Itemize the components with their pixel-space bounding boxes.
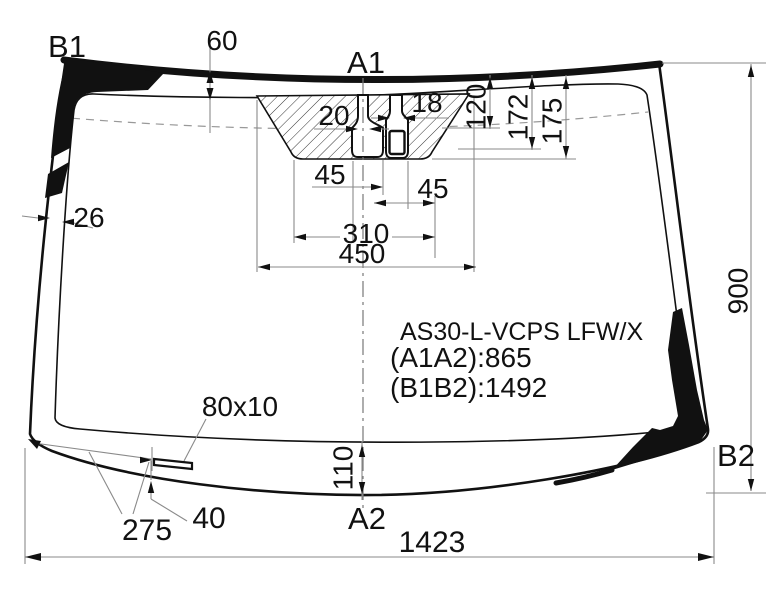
diagram-canvas: B1 A1 A2 B2 60 20 18 120 172 175 45 45 2…: [0, 0, 775, 600]
dim-depth-120: 120: [460, 84, 491, 131]
diagonal-a1a2: (A1A2):865: [390, 342, 532, 373]
dim-110: 110: [327, 446, 358, 491]
dim-top-band: 60: [206, 25, 237, 56]
windshield-diagram: B1 A1 A2 B2 60 20 18 120 172 175 45 45 2…: [0, 0, 775, 600]
dim-900: 900: [722, 268, 753, 315]
dim-slot-right: 18: [411, 87, 442, 118]
diagonal-b1b2: (B1B2):1492: [390, 372, 547, 403]
label-a2: A2: [348, 501, 386, 536]
dim-40: 40: [192, 502, 225, 535]
dim-275: 275: [122, 514, 172, 547]
label-b2: B2: [717, 438, 755, 473]
bracket-sensor-window: [390, 131, 405, 154]
dim-edge-band: 26: [73, 202, 104, 233]
label-b1: B1: [48, 29, 86, 64]
dim-45-left: 45: [314, 159, 345, 190]
dim-450: 450: [339, 238, 386, 269]
dim-slot-left: 20: [318, 100, 349, 131]
dim-1423: 1423: [399, 526, 466, 559]
label-a1: A1: [347, 45, 385, 80]
dim-depth-175: 175: [536, 98, 567, 145]
dim-moulding: 80x10: [202, 391, 278, 422]
dim-45-right: 45: [417, 173, 448, 204]
dim-depth-172: 172: [502, 94, 533, 141]
